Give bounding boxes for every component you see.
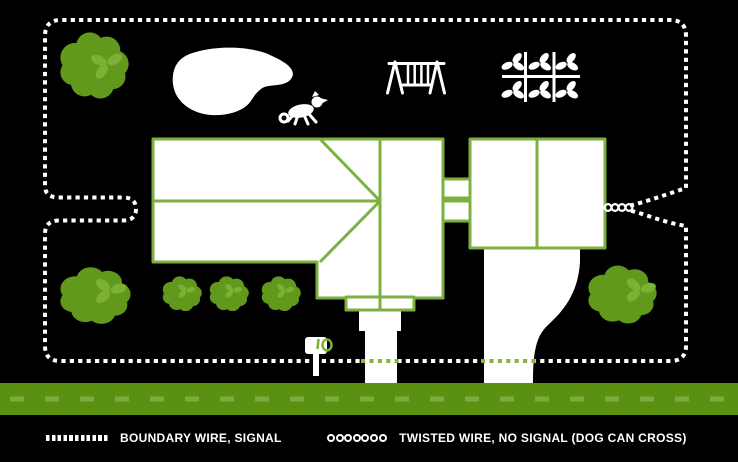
ring-icon: [336, 434, 344, 442]
ring-icon: [361, 434, 369, 442]
legend-label-boundary-wire: BOUNDARY WIRE, SIGNAL: [120, 431, 282, 445]
ring-icon: [344, 434, 352, 442]
tree-icon: [60, 32, 128, 98]
ring-icon: [327, 434, 335, 442]
ring-icon: [379, 434, 387, 442]
dog-icon: [280, 91, 328, 124]
legend-label-twisted-wire: TWISTED WIRE, NO SIGNAL (DOG CAN CROSS): [399, 431, 686, 445]
ring-icon: [370, 434, 378, 442]
road: [0, 383, 738, 415]
twisted-wire: [605, 204, 633, 211]
house-icon: [153, 139, 443, 298]
tree-icon: [60, 267, 130, 324]
yard-wiring-diagram: BOUNDARY WIRE, SIGNAL TWISTED WIRE, NO S…: [0, 0, 738, 462]
diagram-canvas: [0, 0, 738, 462]
swing-set-icon: [388, 62, 445, 93]
garden-icon: [498, 51, 580, 104]
legend-item-boundary-wire: BOUNDARY WIRE, SIGNAL: [46, 430, 282, 446]
legend-item-twisted-wire: TWISTED WIRE, NO SIGNAL (DOG CAN CROSS): [327, 430, 687, 446]
ring-icon: [353, 434, 361, 442]
front-steps: [359, 310, 401, 331]
breezeway-upper: [443, 179, 470, 198]
pond-icon: [173, 48, 293, 116]
breezeway-lower: [443, 201, 470, 221]
boundary-wire-swatch: [46, 435, 109, 441]
twisted-wire-swatch: [327, 434, 387, 442]
mailbox-icon: [305, 337, 332, 376]
walkway: [365, 330, 397, 383]
bush-icon: [588, 266, 656, 324]
